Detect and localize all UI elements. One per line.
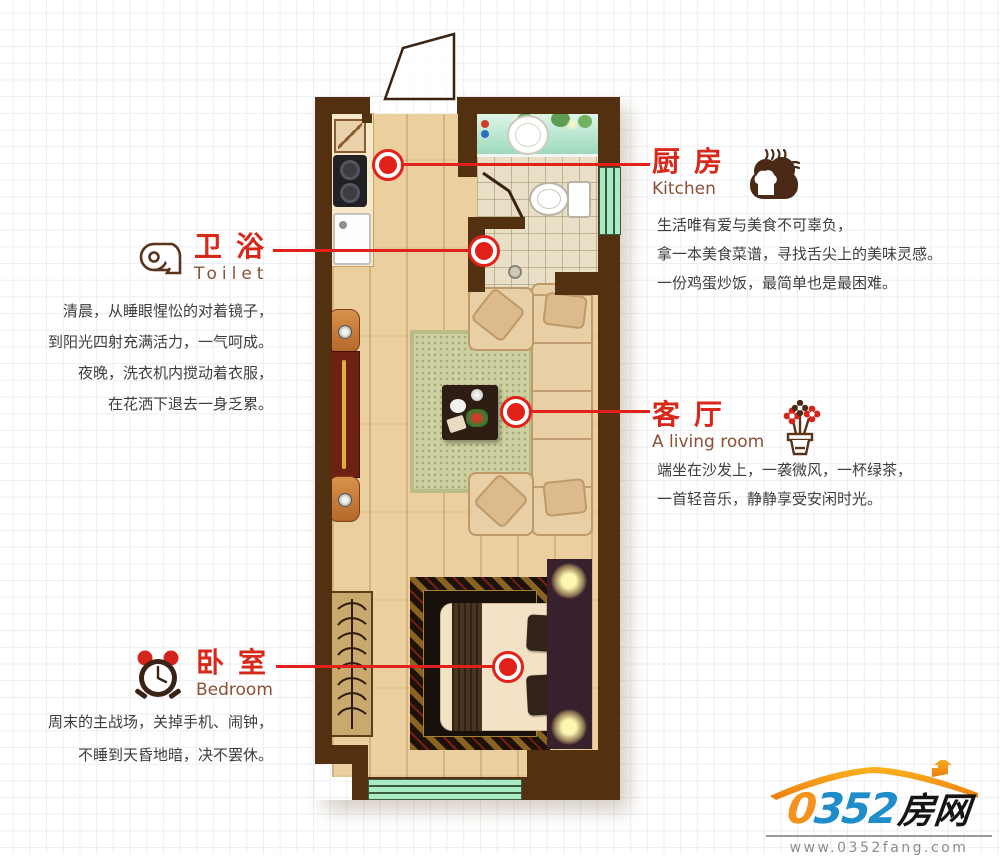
sofa-pillow (542, 478, 587, 517)
toiletry-bottle (481, 130, 489, 138)
alarm-clock-icon (130, 648, 186, 704)
stove-burner (340, 160, 360, 180)
book (446, 415, 466, 434)
range-hood (334, 119, 366, 153)
toilet-description: 清晨，从睡眼惺忪的对着镜子， 到阳光四射充满活力，一气呵成。 夜晚，洗衣机内搅动… (38, 296, 273, 420)
toilet-title-zh: 卫浴 (194, 232, 278, 262)
toilet-label-texts: 卫浴 Toilet (194, 232, 278, 284)
toilet-title-en: Toilet (194, 264, 278, 284)
bedroom-label: 卧室 Bedroom (130, 648, 280, 704)
kitchen-title-en: Kitchen (652, 179, 736, 199)
console-cabinet (328, 351, 360, 478)
bedside-lamp (551, 709, 587, 745)
text-line: 生活唯有爱与美食不可辜负， (657, 211, 942, 240)
text-line: 一份鸡蛋炒饭，最简单也是最困难。 (657, 269, 942, 298)
living-callout-dot (500, 396, 532, 428)
kitchen-label: 厨房 Kitchen (652, 147, 802, 201)
toilet-paper-icon (138, 232, 184, 282)
gas-stove (333, 155, 367, 207)
text-line: 清晨，从睡眼惺忪的对着镜子， (38, 296, 273, 327)
living-title-en: A living room (652, 432, 764, 452)
bedroom-description: 周末的主战场，关掉手机、闹钟， 不睡到天昏地暗，决不罢休。 (38, 706, 273, 772)
hangers-icon (332, 593, 371, 735)
console-cabinet-end (328, 476, 360, 522)
toilet-callout-dot (468, 235, 500, 267)
bathroom-window (599, 167, 621, 235)
kitchen-label-texts: 厨房 Kitchen (652, 147, 736, 199)
toilet-tank (567, 181, 591, 218)
toilet-label: 卫浴 Toilet (138, 232, 278, 284)
brand-352: 352 (812, 784, 899, 833)
console-cabinet-end (328, 309, 360, 353)
wardrobe (330, 591, 373, 737)
coffee-table (442, 385, 498, 440)
living-label-texts: 客厅 A living room (652, 400, 764, 452)
brand-text: 0352房网 (763, 782, 994, 834)
text-line: 拿一本美食菜谱，寻找舌尖上的美味灵感。 (657, 240, 942, 269)
bedroom-label-texts: 卧室 Bedroom (196, 648, 280, 700)
plant (578, 115, 592, 128)
living-callout-line (517, 410, 650, 413)
bedroom-title-en: Bedroom (196, 680, 280, 700)
decor-ball (471, 389, 483, 401)
kitchen-title-zh: 厨房 (652, 147, 736, 177)
text-line: 一首轻音乐，静静享受安闲时光。 (657, 485, 912, 514)
text-line: 不睡到天昏地暗，决不罢休。 (38, 739, 273, 772)
floor-drain (508, 265, 522, 279)
entry-door-swing (378, 28, 462, 102)
grid-paper-background: 厨房 Kitchen 生活唯有爱与美食不可辜负， 拿一本美食菜谱，寻找舌尖上的美… (0, 0, 1000, 854)
toilet-callout-line (273, 249, 484, 252)
living-description: 端坐在沙发上，一袭微风，一杯绿茶， 一首轻音乐，静静享受安闲时光。 (657, 456, 912, 514)
bedroom-callout-line (276, 665, 507, 668)
text-line: 周末的主战场，关掉手机、闹钟， (38, 706, 273, 739)
living-label: 客厅 A living room (652, 400, 826, 458)
bedroom-callout-dot (492, 651, 524, 683)
site-url: www.0352fang.com (766, 835, 992, 856)
door-jamb (362, 114, 372, 123)
flower-pot-icon (774, 400, 826, 458)
flower-red (784, 408, 801, 425)
sofa-pillow (542, 292, 588, 330)
toiletry-bottle (481, 120, 489, 128)
text-line: 夜晚，洗衣机内搅动着衣服， (38, 358, 273, 389)
bedside-lamp (551, 563, 587, 599)
ceiling-light-glow (567, 119, 578, 130)
bathroom-wall (555, 272, 620, 295)
bread-icon (746, 147, 802, 201)
floor-plan (315, 97, 620, 800)
kitchen-sink (333, 213, 371, 265)
wash-basin (507, 115, 549, 155)
plate (450, 399, 466, 413)
wall (457, 97, 620, 114)
wall (315, 97, 332, 758)
wall-corner (527, 750, 620, 800)
text-line: 在花洒下退去一身乏累。 (38, 389, 273, 420)
bedroom-window (368, 779, 522, 800)
text-line: 到阳光四射充满活力，一气呵成。 (38, 327, 273, 358)
bathroom-wall (458, 114, 477, 177)
kitchen-callout-dot (372, 149, 404, 181)
kitchen-callout-line (389, 163, 650, 166)
brand-cn: 房网 (896, 782, 973, 834)
text-line: 端坐在沙发上，一袭微风，一杯绿茶， (657, 456, 912, 485)
bedroom-title-zh: 卧室 (196, 648, 280, 678)
headboard-nightstands (547, 559, 592, 749)
flower-decor (466, 409, 488, 427)
stove-burner (340, 183, 360, 203)
site-logo: 0352房网 www.0352fang.com (766, 760, 992, 856)
kitchen-description: 生活唯有爱与美食不可辜负， 拿一本美食菜谱，寻找舌尖上的美味灵感。 一份鸡蛋炒饭… (657, 211, 942, 298)
living-title-zh: 客厅 (652, 400, 764, 430)
